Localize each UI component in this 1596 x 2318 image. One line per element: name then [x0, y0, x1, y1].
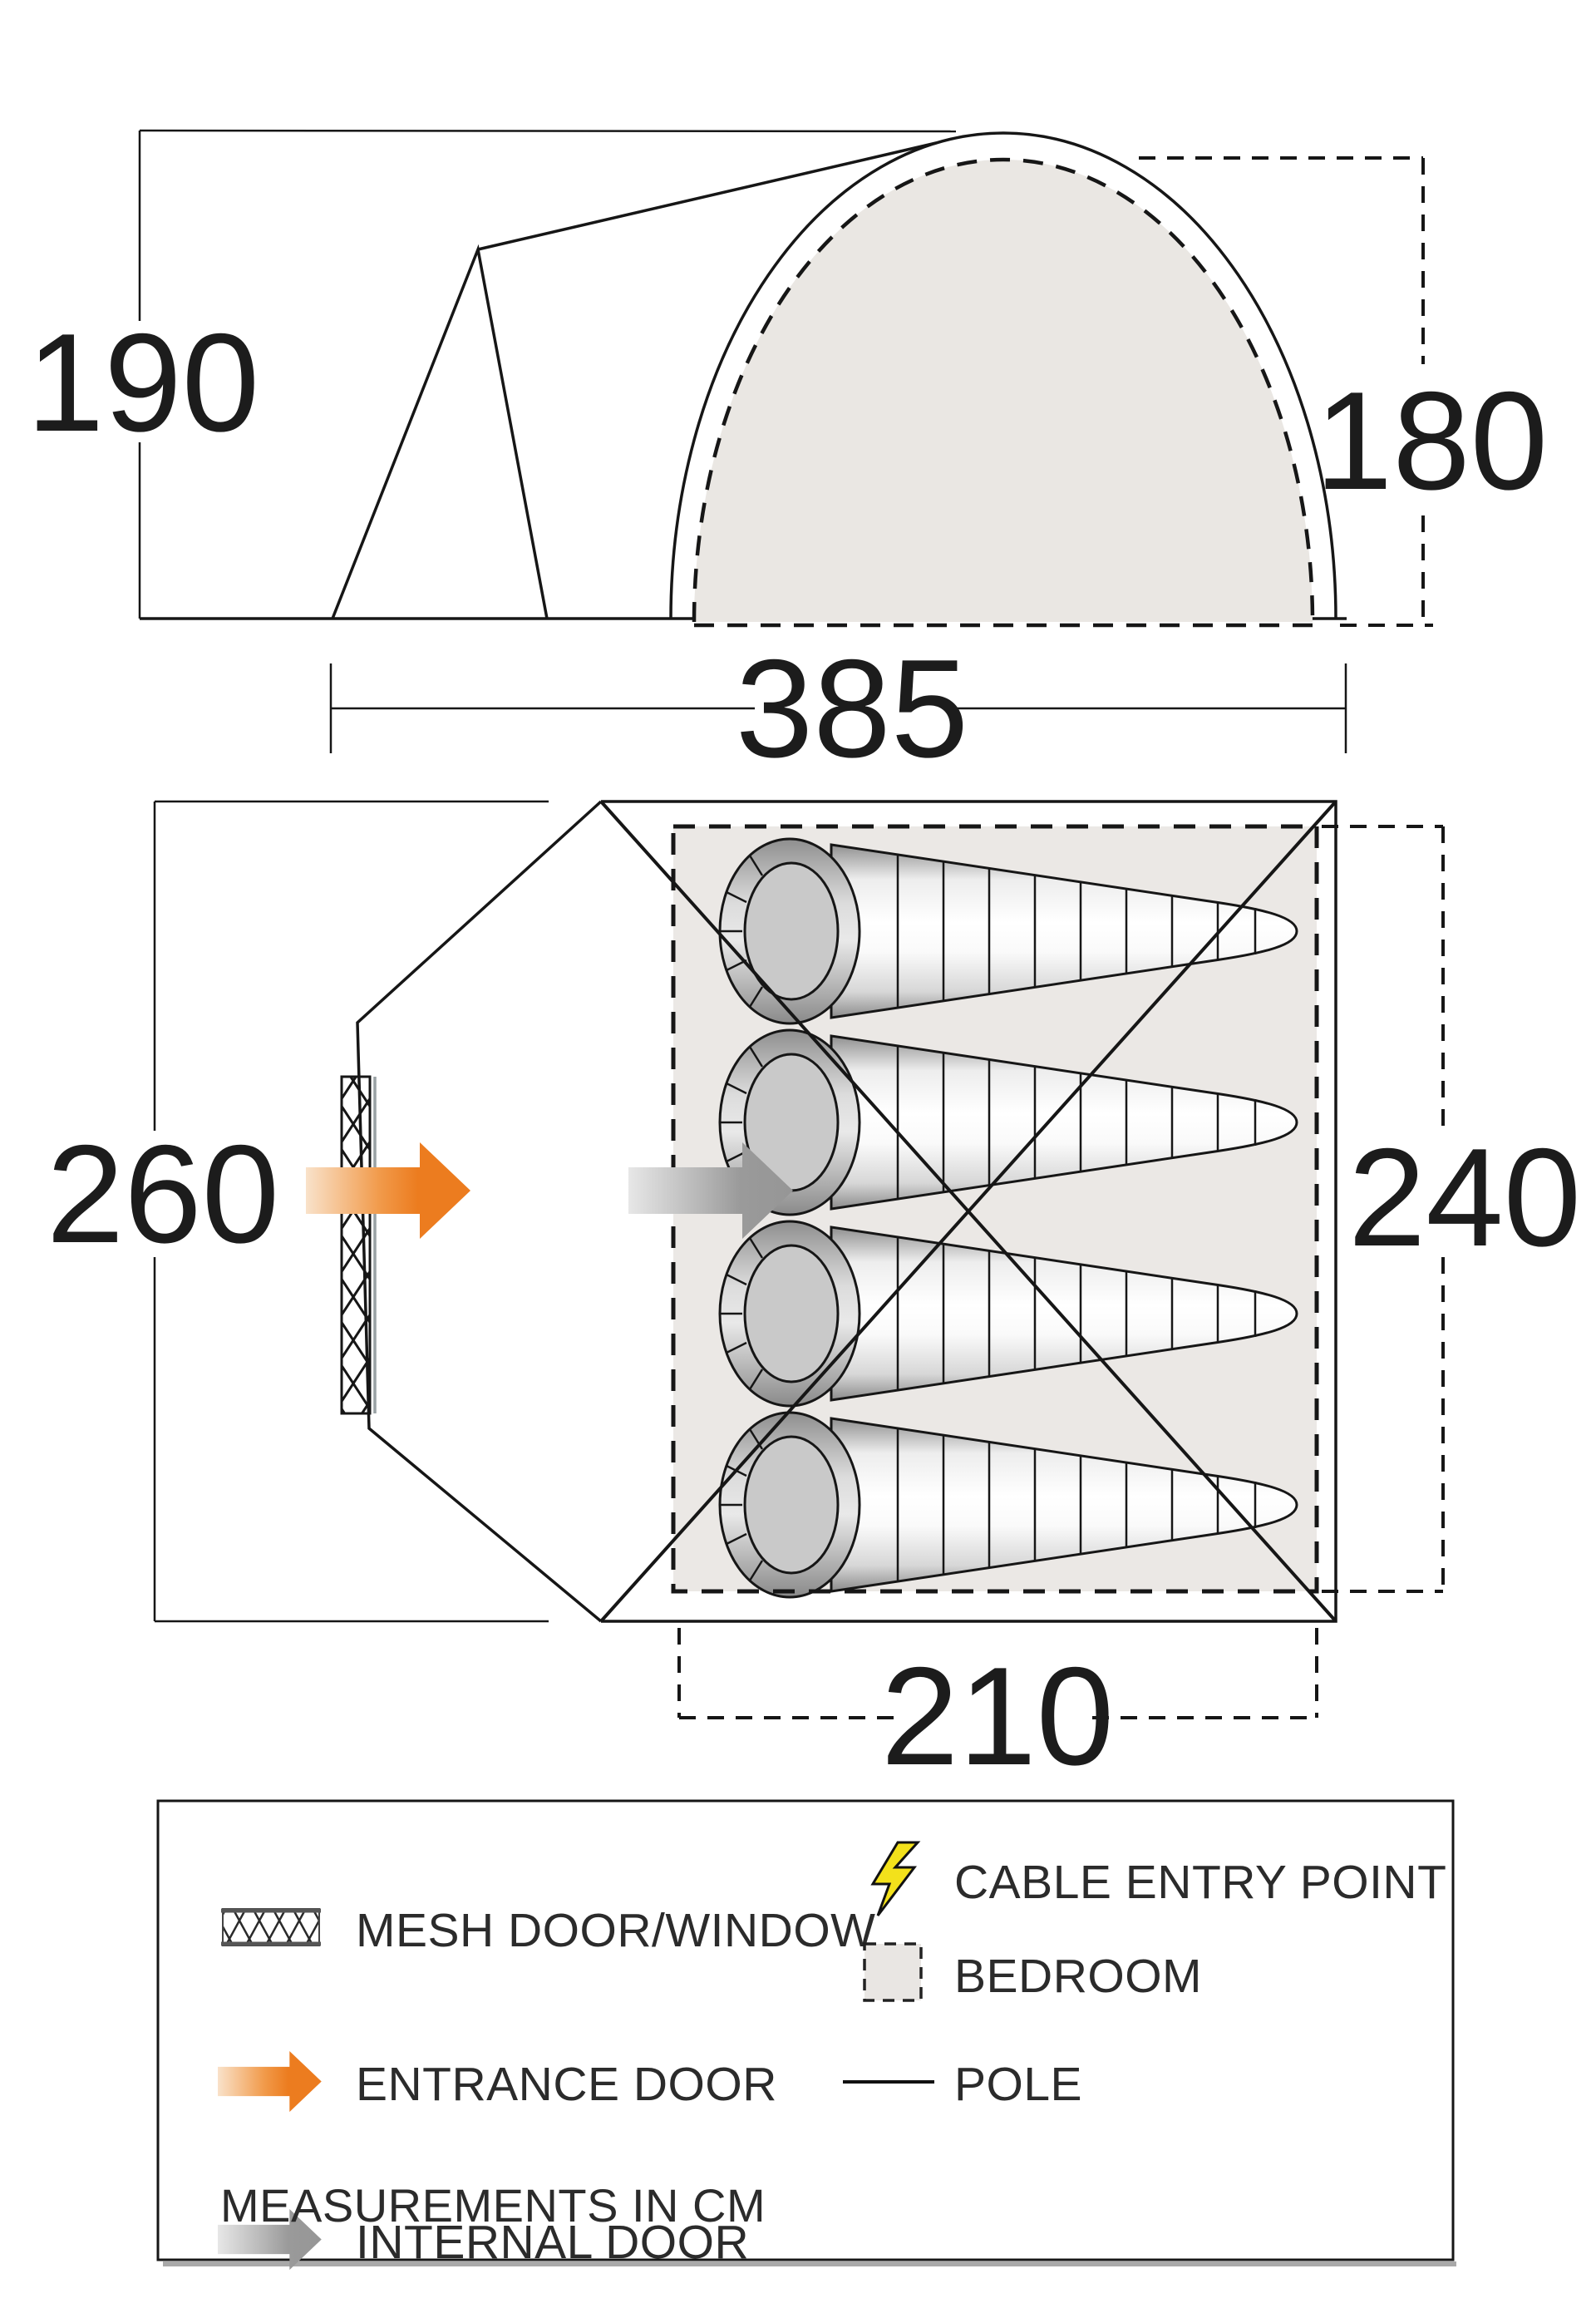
- dim-label-210: 210: [881, 1638, 1114, 1794]
- plan-dim-depth-bedroom: 240: [1322, 826, 1581, 1591]
- dim-label-190: 190: [27, 304, 259, 461]
- entrance-door-arrow: [306, 1142, 470, 1239]
- measurements-note: MEASUREMENTS IN CM: [220, 2179, 766, 2232]
- tent-dimension-sheet: 190 180 385: [0, 0, 1596, 2318]
- mesh-door-strip: [342, 1077, 375, 1413]
- dim-label-260: 260: [47, 1116, 279, 1272]
- mesh-swatch-icon: [221, 1909, 321, 1946]
- dim-label-385: 385: [736, 630, 968, 787]
- porch-pole-triangle: [332, 249, 547, 619]
- legend: MESH DOOR/WINDOW ENTRANCE DOOR INTERNAL …: [158, 1801, 1456, 2270]
- side-view: 190 180 385: [27, 131, 1548, 787]
- bedroom-swatch-icon: [864, 1944, 921, 2000]
- dim-label-240: 240: [1348, 1119, 1581, 1275]
- legend-label-cable: CABLE ENTRY POINT: [954, 1856, 1446, 1909]
- plan-dim-depth-total: 260: [47, 801, 549, 1621]
- legend-label-entrance: ENTRANCE DOOR: [356, 2058, 777, 2111]
- dome-bedroom: [694, 160, 1313, 625]
- tent-dimensions-diagram: 190 180 385: [0, 0, 1596, 2318]
- legend-item-bedroom: BEDROOM: [864, 1944, 1202, 2003]
- side-dim-width: 385: [331, 630, 1346, 787]
- dim-label-180: 180: [1315, 362, 1548, 519]
- legend-label-mesh: MESH DOOR/WINDOW: [356, 1904, 875, 1957]
- legend-label-pole: POLE: [954, 2058, 1082, 2111]
- floor-plan: 260 240 210: [47, 801, 1581, 1794]
- plan-dim-width-bedroom: 210: [679, 1628, 1317, 1794]
- legend-label-bedroom: BEDROOM: [954, 1950, 1202, 2003]
